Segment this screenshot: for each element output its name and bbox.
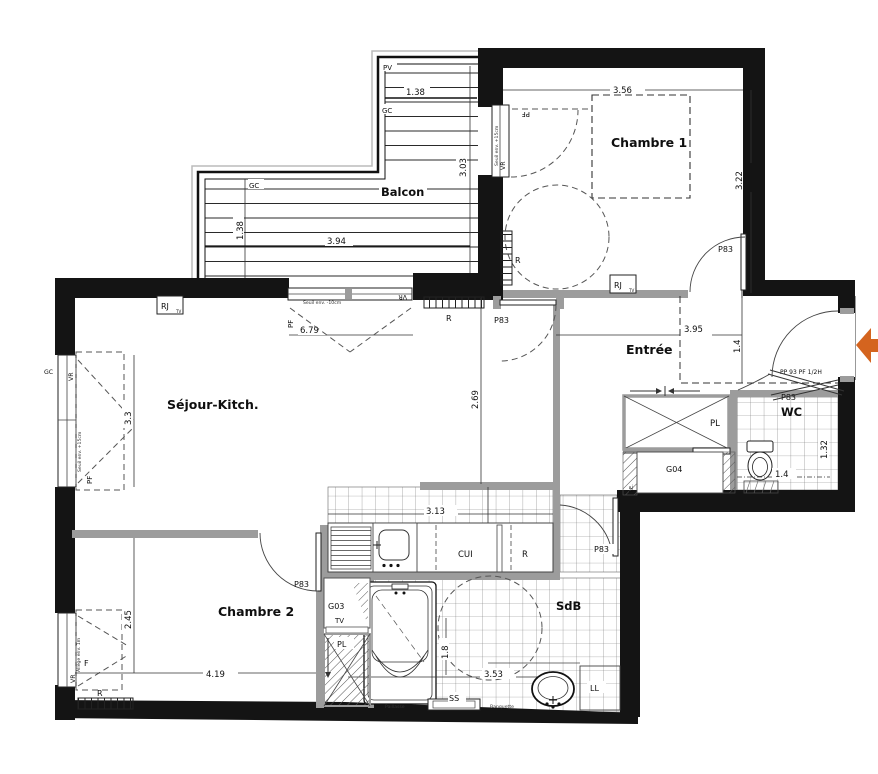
balcony-gc-lower-label: GC [249, 182, 259, 190]
door-label-sdb: P83 [594, 545, 609, 554]
dim-sejour-window: 3.3 [124, 411, 134, 425]
chambre2-window-allege-note: Allège env. 1m [75, 637, 82, 672]
radiator-chambre1-label: R [515, 256, 521, 265]
fridge-label: R [522, 550, 528, 560]
room-label-chambre1: Chambre 1 [611, 135, 687, 150]
radiator-chambre2-label: R [97, 689, 103, 698]
door-label-chambre2: P83 [294, 580, 309, 589]
balcony-gc-upper-label: GC [382, 107, 392, 115]
g03-label: G03 [328, 602, 344, 611]
room-label-sejour: Séjour-Kitch. [167, 397, 259, 412]
bay-window-vr-label: VR [398, 293, 407, 300]
sejour-window-vr-label: VR [68, 372, 75, 381]
room-label-chambre2: Chambre 2 [218, 604, 294, 619]
closet-pl-chambre2-label: PL [337, 640, 347, 649]
door-label-chambre1: P83 [718, 245, 733, 254]
dim-sdb-width: 3.53 [484, 670, 503, 680]
g03-tv-label: TV [334, 617, 344, 625]
chambre1-window-pf-label: PF [522, 110, 530, 118]
entree-closets: PL TV G04 T.E. [623, 386, 735, 495]
shower-seat-label: SS [449, 694, 459, 703]
rj-chambre1-tv-sub: TV [628, 288, 634, 293]
sejour-window-gc-label: GC [44, 369, 53, 376]
paillasse-note: Paillasse [385, 704, 405, 710]
sejour-window-seuil-note: Seuil env. +15cm [77, 431, 83, 472]
chambre1-window-vr-label: VR [500, 161, 507, 170]
rj-sejour-tv-sub: TV [175, 309, 181, 314]
dim-balcony-lower-width: 3.94 [327, 237, 346, 247]
floor-plan: PV 1.38 GC 3.03 GC Balcon 1.38 3.94 [0, 0, 878, 774]
radiator-sejour-label: R [446, 314, 452, 323]
dim-entree-depth: 1.4 [733, 339, 743, 353]
dim-sejour-depth: 2.69 [471, 390, 481, 409]
kitchen-sink [379, 530, 409, 560]
chambre1-window-seuil-note: Seuil env. +15cm [494, 125, 500, 166]
dim-chambre2-depth: 2.45 [124, 610, 134, 629]
chambre2-window-f-label: F [84, 659, 89, 668]
cooktop [331, 527, 371, 569]
dim-balcony-upper-width: 1.38 [406, 88, 425, 98]
floor-plan-svg: PV 1.38 GC 3.03 GC Balcon 1.38 3.94 [0, 0, 878, 774]
sejour-window-pf-label: PF [86, 476, 94, 484]
radiator-chambre2 [78, 698, 133, 709]
bathtub [364, 582, 436, 704]
dim-wc-depth: 1.32 [820, 440, 830, 459]
room-label-entree: Entrée [626, 342, 673, 357]
rj-sejour-label: RJ [161, 302, 169, 311]
radiator-sejour [424, 297, 484, 308]
room-label-sdb: SdB [556, 599, 581, 613]
rj-chambre1-label: RJ [614, 281, 622, 290]
chambre2-window-vr-label: VR [70, 674, 77, 683]
balcony-pv-label: PV [383, 64, 392, 72]
dim-chambre2-width: 4.19 [206, 670, 225, 680]
te-duct-label: T.E. [629, 484, 635, 494]
room-label-balcon: Balcon [381, 185, 424, 199]
dim-kitchen-width: 3.13 [426, 507, 445, 517]
bay-pf-label: PF [287, 320, 295, 328]
dim-chambre1-depth: 3.22 [735, 171, 745, 190]
washing-machine-label: LL [590, 684, 599, 693]
dim-bathtub-length: 1.8 [441, 645, 451, 659]
banquette-note: Banquette [490, 704, 514, 710]
dim-wc-width: 1.4 [775, 470, 789, 480]
door-label-sejour: P83 [494, 316, 509, 325]
dim-balcony-lower-depth: 1.38 [236, 221, 246, 240]
toilet-tank [747, 441, 773, 452]
closet-pl-entree-label: PL [710, 419, 720, 429]
room-label-cui: CUI [458, 550, 473, 560]
radiator-chambre1 [501, 231, 512, 285]
bay-window-seuil-note: Seuil env. -10cm [303, 300, 342, 306]
dim-chambre1-width: 3.56 [613, 86, 632, 96]
dim-balcony-upper-depth: 3.03 [459, 158, 469, 177]
dim-entree-width: 3.95 [684, 325, 703, 335]
toilet-bowl [748, 452, 772, 480]
room-label-wc: WC [781, 405, 802, 419]
g04-label: G04 [666, 465, 682, 474]
entrance-door-label: PP 93 PF 1/2H [780, 369, 822, 376]
